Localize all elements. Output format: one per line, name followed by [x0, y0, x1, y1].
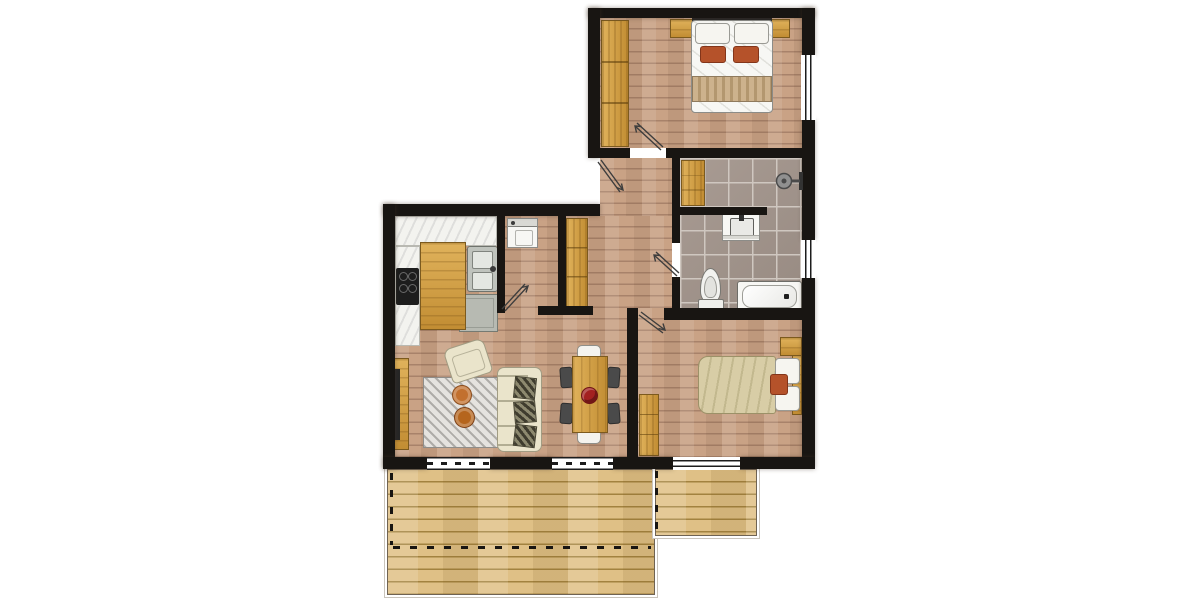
door-swing-overlay [0, 0, 1200, 600]
bathroom-door [654, 252, 679, 276]
bedroom-1-door [635, 123, 663, 150]
entry-door [598, 160, 623, 192]
floor-plan-canvas [0, 0, 1200, 600]
utility-closet-door [502, 284, 528, 311]
shower-head-icon [777, 172, 804, 190]
bedroom-2-door [639, 312, 665, 333]
